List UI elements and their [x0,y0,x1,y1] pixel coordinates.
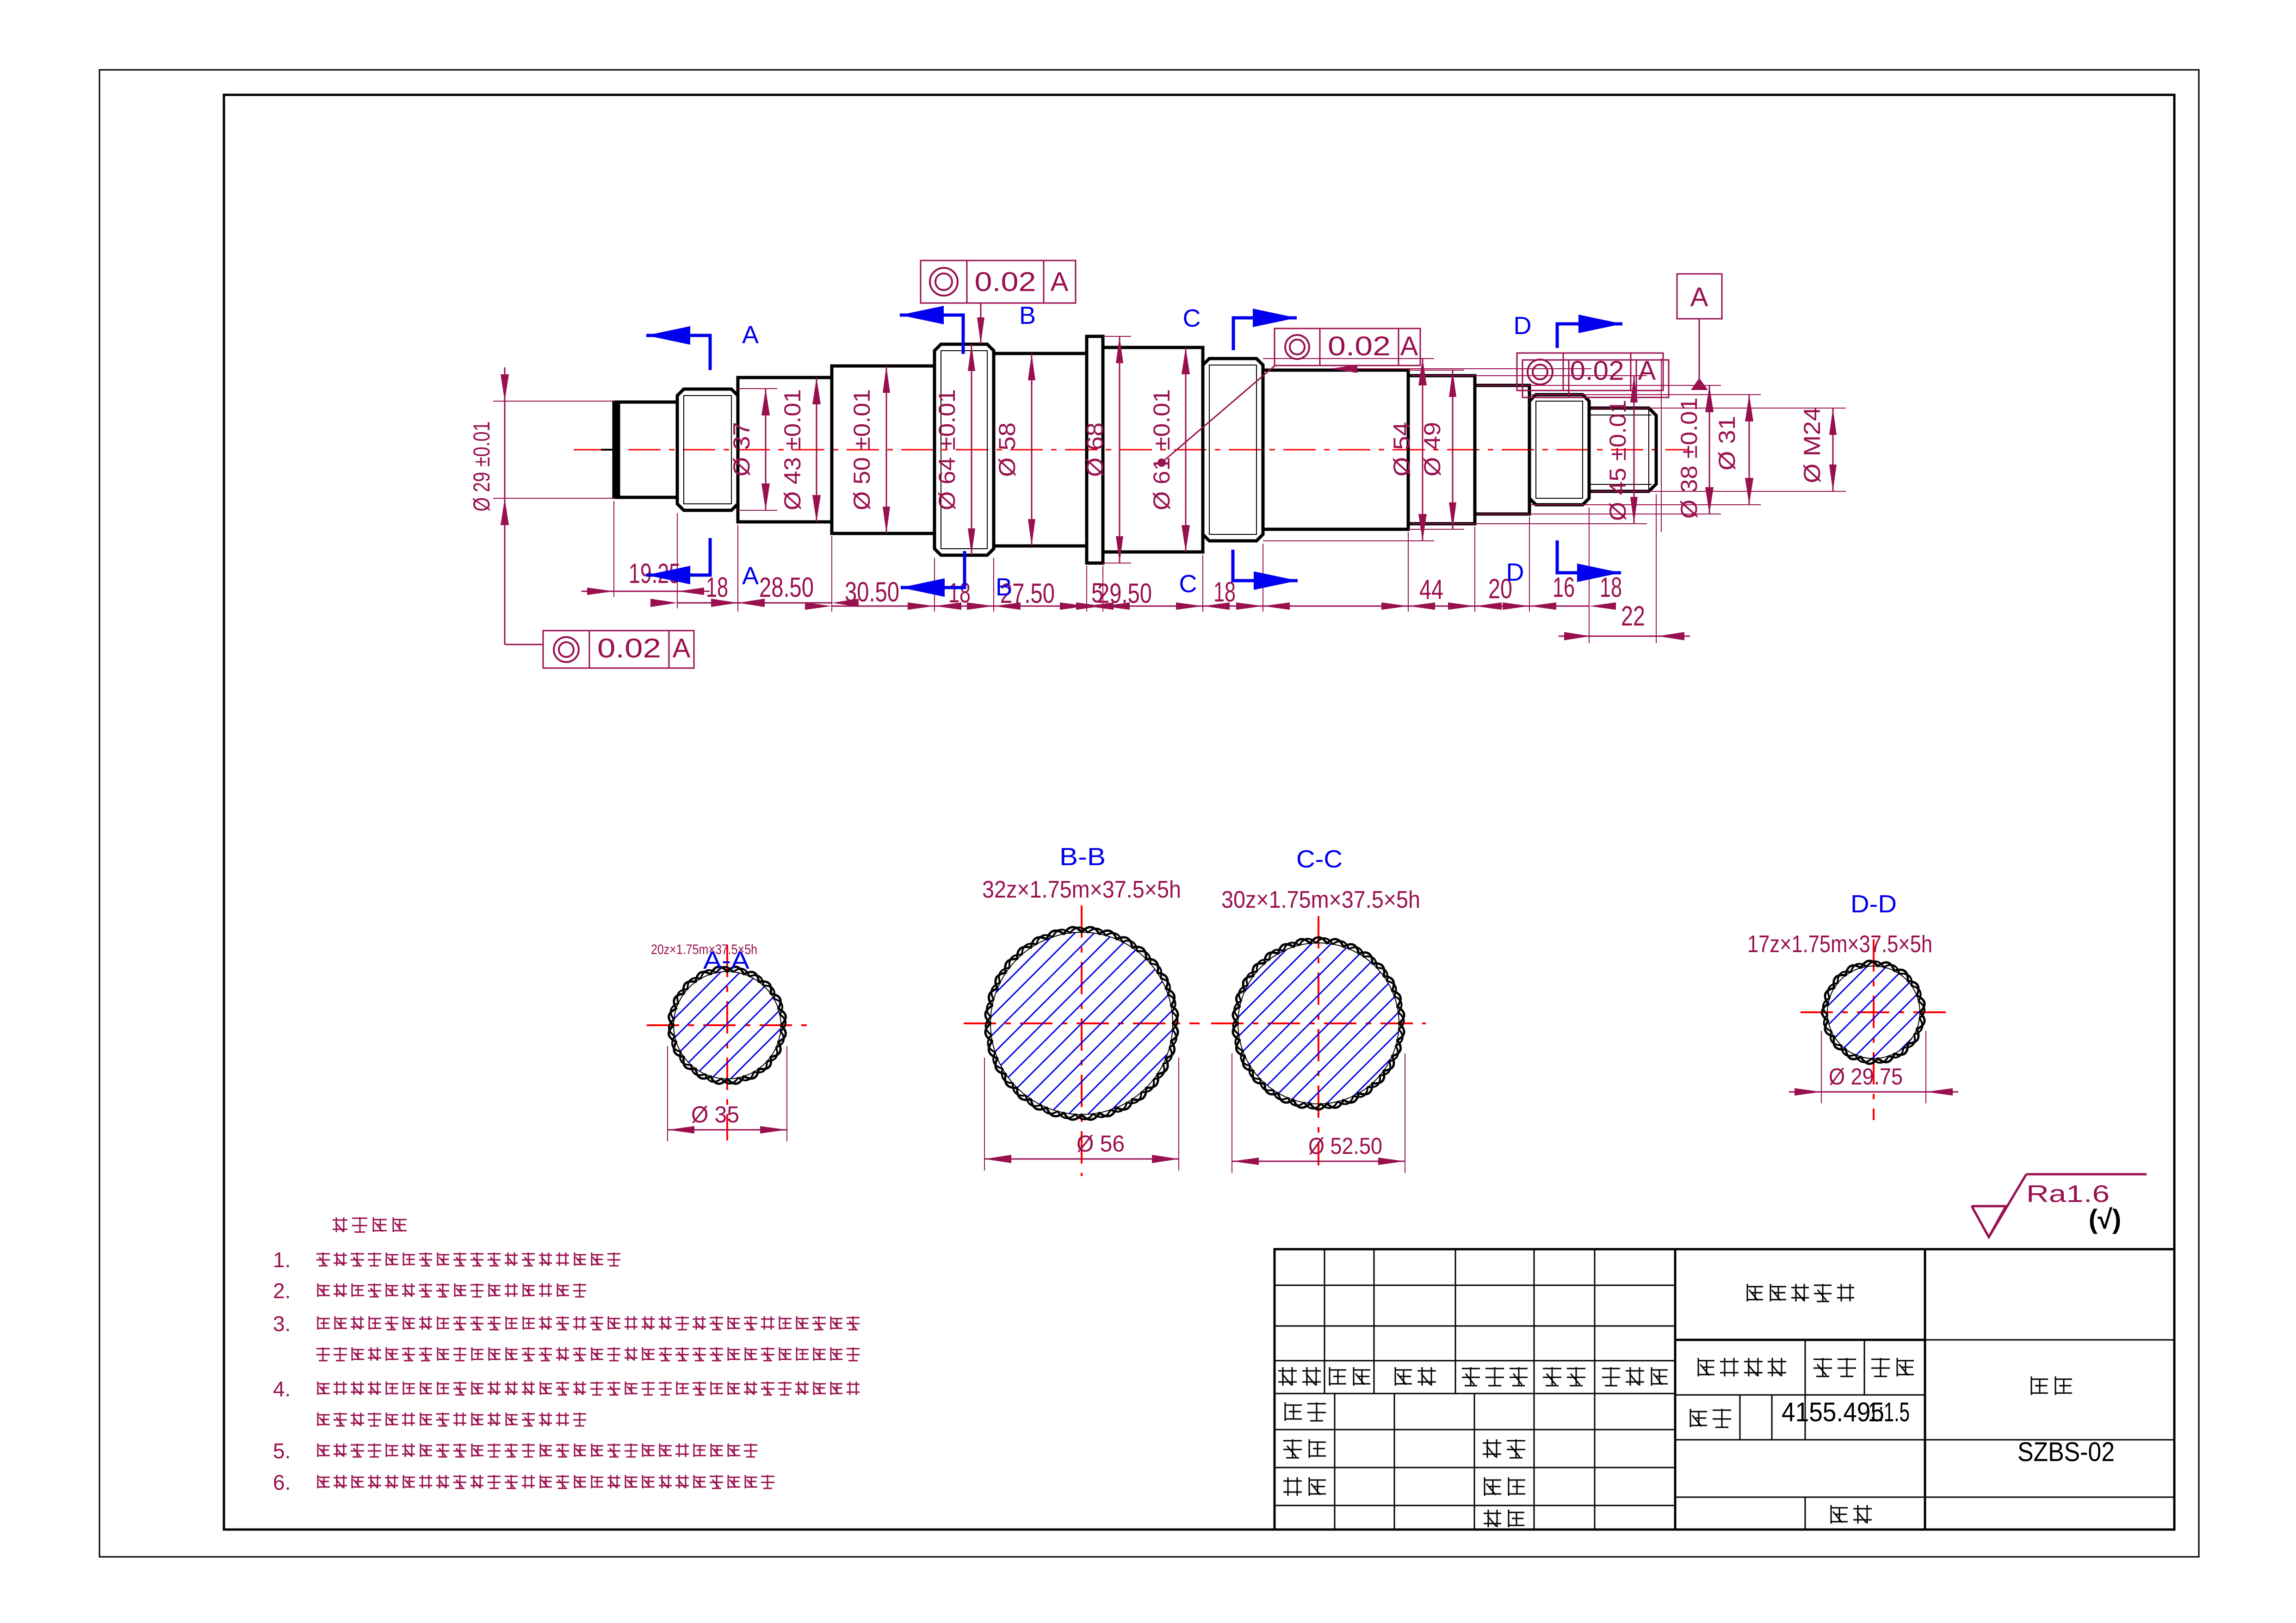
svg-text:D: D [1514,312,1532,340]
svg-text:B: B [1019,302,1036,329]
svg-text:0.02: 0.02 [597,633,661,663]
svg-text:A: A [742,321,759,349]
svg-text:Ø 54: Ø 54 [1389,422,1415,477]
svg-text:Ø 58: Ø 58 [994,422,1020,477]
svg-text:B-B: B-B [1059,843,1106,871]
svg-text:B: B [996,573,1012,601]
svg-text:2.: 2. [273,1279,291,1303]
svg-text:A: A [673,633,691,663]
svg-text:Ø 35: Ø 35 [691,1102,739,1127]
svg-text:16: 16 [1553,572,1575,603]
svg-text:5.: 5. [273,1439,291,1463]
svg-text:44: 44 [1419,574,1443,605]
svg-text:C: C [1179,570,1197,598]
svg-text:30z×1.75m×37.5×5h: 30z×1.75m×37.5×5h [1221,886,1420,913]
svg-text:A-A: A-A [703,947,749,974]
svg-text:28.50: 28.50 [759,572,814,603]
svg-text:A: A [1400,331,1418,361]
svg-text:Ø 56: Ø 56 [1077,1131,1125,1157]
svg-text:(√): (√) [2089,1204,2121,1234]
svg-text:Ø 61 ±0.01: Ø 61 ±0.01 [1149,389,1175,510]
svg-text:A: A [1690,282,1708,312]
svg-text:32z×1.75m×37.5×5h: 32z×1.75m×37.5×5h [982,876,1181,903]
svg-text:1.: 1. [273,1248,291,1272]
svg-text:Ø M24: Ø M24 [1799,407,1825,483]
svg-text:Ø 50 ±0.01: Ø 50 ±0.01 [849,389,875,510]
svg-text:D-D: D-D [1850,890,1897,918]
svg-text:Ø 68: Ø 68 [1082,422,1108,477]
svg-text:D: D [1506,558,1524,586]
svg-text:3.: 3. [273,1312,291,1336]
svg-text:1:1.5: 1:1.5 [1868,1397,1910,1427]
svg-text:0.02: 0.02 [1328,331,1391,361]
svg-text:Ø 64 ±0.01: Ø 64 ±0.01 [934,389,960,510]
svg-text:Ø 37: Ø 37 [729,422,755,477]
svg-text:C: C [1183,304,1201,332]
svg-text:Ø 38 ±0.01: Ø 38 ±0.01 [1676,397,1702,519]
svg-text:30.50: 30.50 [845,576,899,607]
svg-text:Ø 49: Ø 49 [1419,422,1445,477]
svg-text:C-C: C-C [1296,845,1343,873]
svg-text:Ra1.6: Ra1.6 [2026,1181,2110,1208]
svg-text:Ø 52.50: Ø 52.50 [1308,1133,1382,1159]
svg-text:Ø 31: Ø 31 [1714,416,1740,471]
svg-text:A: A [742,562,759,590]
svg-text:0.02: 0.02 [975,267,1036,297]
svg-text:Ø 45 ±0.01: Ø 45 ±0.01 [1605,400,1631,521]
svg-text:17z×1.75m×37.5×5h: 17z×1.75m×37.5×5h [1747,931,1932,958]
svg-text:29.50: 29.50 [1097,578,1152,609]
svg-text:SZBS-02: SZBS-02 [2018,1437,2115,1467]
svg-text:22: 22 [1621,601,1645,632]
svg-text:4.: 4. [273,1377,291,1401]
svg-text:Ø 29.75: Ø 29.75 [1829,1064,1903,1090]
svg-text:A: A [1051,267,1069,297]
svg-text:6.: 6. [273,1470,291,1494]
svg-text:Ø 43 ±0.01: Ø 43 ±0.01 [780,389,805,510]
svg-text:Ø 29 ±0.01: Ø 29 ±0.01 [469,421,495,512]
